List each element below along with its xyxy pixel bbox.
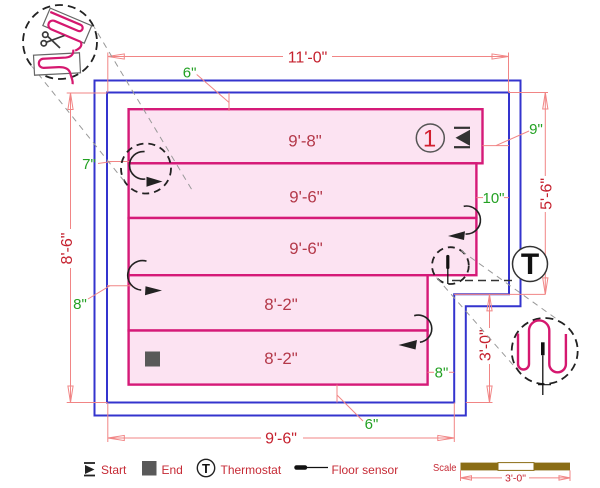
svg-text:Start: Start: [101, 463, 127, 477]
svg-text:5'-6": 5'-6": [539, 178, 556, 210]
svg-text:3'-0": 3'-0": [478, 329, 495, 361]
svg-text:Thermostat: Thermostat: [221, 463, 282, 477]
svg-text:T: T: [202, 461, 210, 476]
svg-text:3'-0": 3'-0": [505, 473, 526, 485]
svg-text:8": 8": [73, 296, 87, 313]
svg-text:11'-0": 11'-0": [288, 49, 328, 66]
svg-text:9": 9": [529, 121, 543, 138]
svg-text:1: 1: [423, 126, 436, 153]
svg-text:T: T: [521, 248, 539, 281]
svg-text:6": 6": [183, 64, 197, 81]
svg-text:8": 8": [435, 365, 449, 382]
svg-text:9'-6": 9'-6": [289, 188, 323, 207]
svg-text:Floor sensor: Floor sensor: [332, 463, 399, 477]
svg-text:6": 6": [365, 416, 379, 433]
svg-text:9'-6": 9'-6": [265, 431, 297, 448]
svg-text:10": 10": [482, 190, 504, 207]
svg-text:8'-2": 8'-2": [264, 349, 298, 368]
svg-text:8'-6": 8'-6": [59, 233, 76, 265]
svg-text:7": 7": [82, 156, 96, 173]
svg-text:8'-2": 8'-2": [264, 295, 298, 314]
svg-text:Scale: Scale: [433, 462, 457, 474]
svg-text:End: End: [162, 463, 183, 477]
svg-text:9'-8": 9'-8": [288, 132, 322, 151]
svg-text:9'-6": 9'-6": [289, 239, 323, 258]
